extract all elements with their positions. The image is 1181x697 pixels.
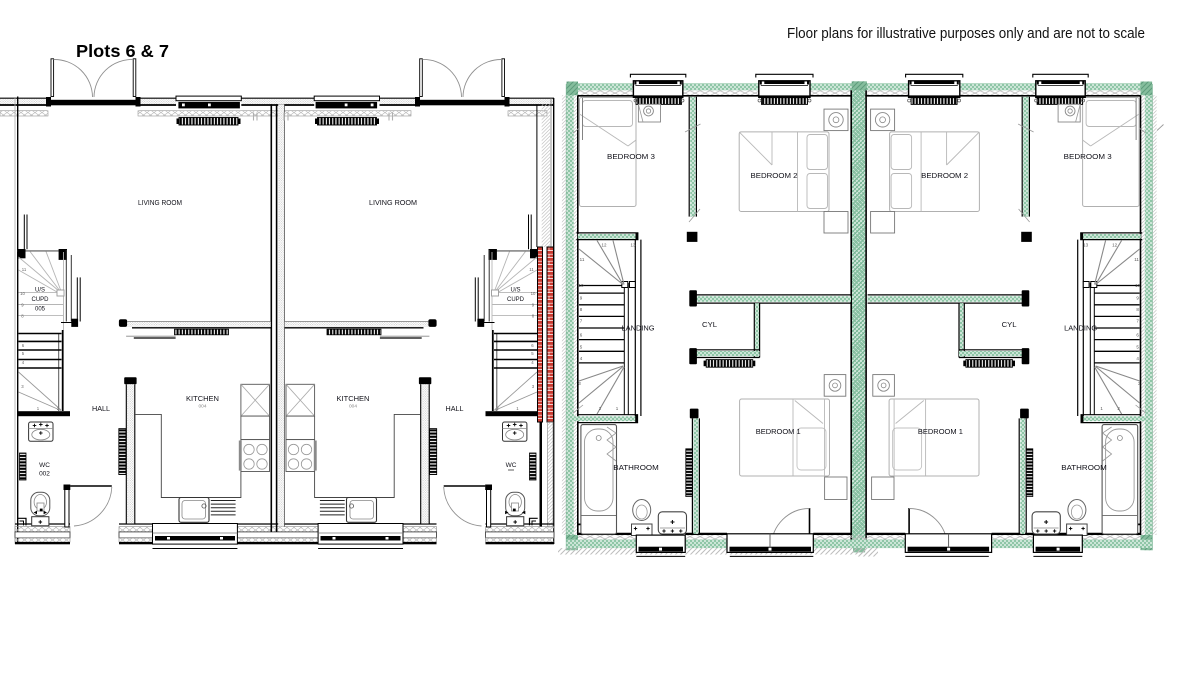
svg-text:LIVING ROOM: LIVING ROOM <box>138 198 182 207</box>
svg-text:11: 11 <box>22 267 27 272</box>
svg-text:BEDROOM 1: BEDROOM 1 <box>918 427 963 436</box>
svg-text:Plots 6 & 7: Plots 6 & 7 <box>76 41 169 61</box>
svg-text:LIVING ROOM: LIVING ROOM <box>369 198 417 207</box>
svg-text:BATHROOM: BATHROOM <box>613 463 659 472</box>
svg-text:004: 004 <box>349 404 358 409</box>
svg-text:CYL: CYL <box>702 320 717 329</box>
svg-text:WC: WC <box>506 462 517 469</box>
svg-text:LANDING: LANDING <box>1064 324 1097 333</box>
svg-text:BEDROOM 3: BEDROOM 3 <box>607 152 655 161</box>
svg-text:11: 11 <box>580 257 585 262</box>
svg-text:10: 10 <box>1135 283 1141 288</box>
svg-text:13: 13 <box>630 243 636 248</box>
svg-text:12: 12 <box>1112 243 1118 248</box>
svg-text:BEDROOM 2: BEDROOM 2 <box>751 171 798 180</box>
svg-text:CYL: CYL <box>1002 320 1017 329</box>
svg-text:BEDROOM 2: BEDROOM 2 <box>921 171 968 180</box>
svg-text:KITCHEN: KITCHEN <box>186 394 219 403</box>
svg-text:BEDROOM 1: BEDROOM 1 <box>756 427 801 436</box>
svg-text:004: 004 <box>199 404 208 409</box>
svg-text:11: 11 <box>529 267 534 272</box>
svg-text:12: 12 <box>601 243 607 248</box>
svg-text:U/S: U/S <box>510 288 520 294</box>
svg-text:U/S: U/S <box>35 288 45 294</box>
svg-text:005: 005 <box>35 307 46 313</box>
svg-text:HALL: HALL <box>446 404 464 413</box>
svg-text:Floor plans for illustrative p: Floor plans for illustrative purposes on… <box>787 25 1145 42</box>
svg-text:CUPD: CUPD <box>31 297 49 303</box>
svg-text:13: 13 <box>1083 243 1089 248</box>
svg-text:10: 10 <box>531 291 536 296</box>
svg-text:LANDING: LANDING <box>622 324 655 333</box>
svg-text:WC: WC <box>39 462 50 469</box>
svg-text:BEDROOM 3: BEDROOM 3 <box>1064 152 1112 161</box>
svg-text:BATHROOM: BATHROOM <box>1061 463 1107 472</box>
svg-text:10: 10 <box>578 283 584 288</box>
svg-text:11: 11 <box>1134 257 1139 262</box>
svg-text:CUPD: CUPD <box>507 297 525 303</box>
svg-text:HALL: HALL <box>92 404 110 413</box>
svg-text:10: 10 <box>20 291 25 296</box>
svg-text:KITCHEN: KITCHEN <box>337 394 370 403</box>
svg-text:002: 002 <box>39 471 50 478</box>
